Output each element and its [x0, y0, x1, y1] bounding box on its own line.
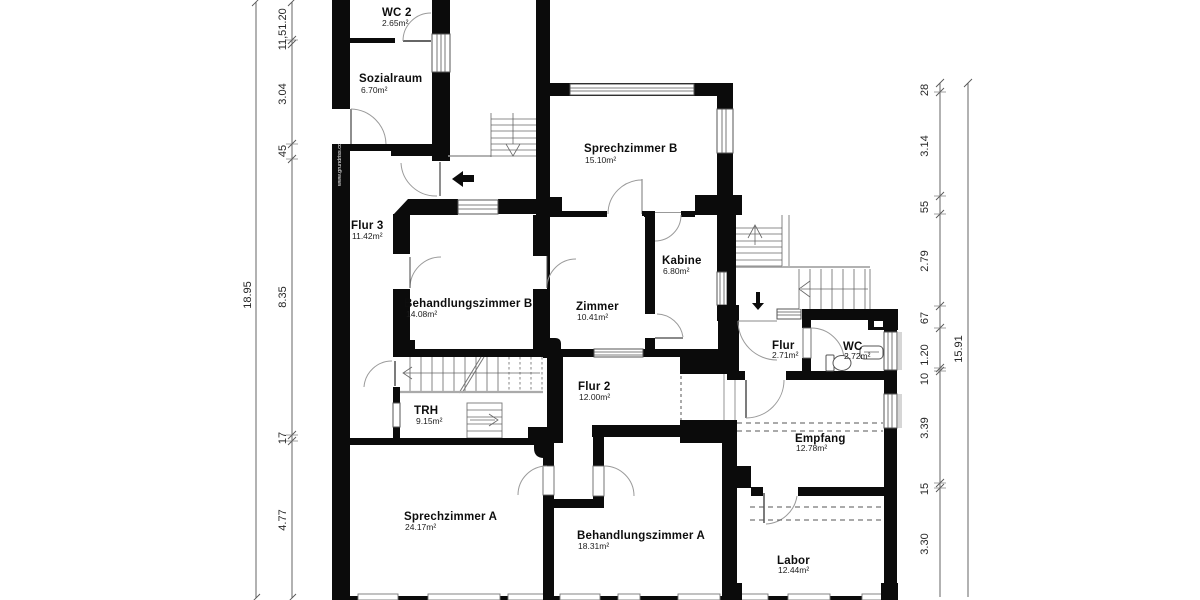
svg-text:12.44m²: 12.44m² [778, 565, 809, 575]
svg-text:3.39: 3.39 [919, 417, 931, 438]
svg-text:6.80m²: 6.80m² [663, 266, 690, 276]
svg-text:2.65m²: 2.65m² [382, 18, 409, 28]
svg-text:2.72m²: 2.72m² [844, 351, 871, 361]
svg-text:3.30: 3.30 [919, 533, 931, 554]
svg-text:17: 17 [277, 432, 289, 444]
svg-text:3.14: 3.14 [919, 135, 931, 156]
svg-text:24.17m²: 24.17m² [405, 522, 436, 532]
svg-text:8.35: 8.35 [277, 286, 289, 307]
svg-text:14.08m²: 14.08m² [406, 309, 437, 319]
svg-text:1.20: 1.20 [919, 344, 931, 365]
svg-text:4.77: 4.77 [277, 509, 289, 530]
svg-text:www.grundriss.com: www.grundriss.com [337, 138, 343, 187]
svg-text:2.79: 2.79 [919, 250, 931, 271]
svg-text:9.15m²: 9.15m² [416, 416, 443, 426]
svg-text:11.42m²: 11.42m² [352, 231, 383, 241]
svg-text:67: 67 [919, 312, 931, 324]
svg-text:18.31m²: 18.31m² [578, 541, 609, 551]
svg-text:1.20: 1.20 [277, 8, 289, 29]
svg-text:2.71m²: 2.71m² [772, 350, 799, 360]
svg-text:15.91: 15.91 [953, 335, 965, 363]
svg-text:28: 28 [919, 84, 931, 96]
svg-text:12.78m²: 12.78m² [796, 443, 827, 453]
svg-text:10: 10 [919, 373, 931, 385]
svg-text:10.41m²: 10.41m² [577, 312, 608, 322]
svg-text:12.00m²: 12.00m² [579, 392, 610, 402]
svg-text:Sozialraum: Sozialraum [359, 73, 422, 85]
svg-text:18.95: 18.95 [242, 281, 254, 309]
svg-text:15.10m²: 15.10m² [585, 155, 616, 165]
svg-text:Sprechzimmer B: Sprechzimmer B [584, 143, 678, 155]
svg-text:3.04: 3.04 [277, 83, 289, 104]
svg-text:15: 15 [919, 483, 931, 495]
svg-text:6.70m²: 6.70m² [361, 85, 388, 95]
svg-text:11,5: 11,5 [277, 30, 289, 51]
svg-text:55: 55 [919, 201, 931, 213]
svg-text:45: 45 [277, 145, 289, 157]
